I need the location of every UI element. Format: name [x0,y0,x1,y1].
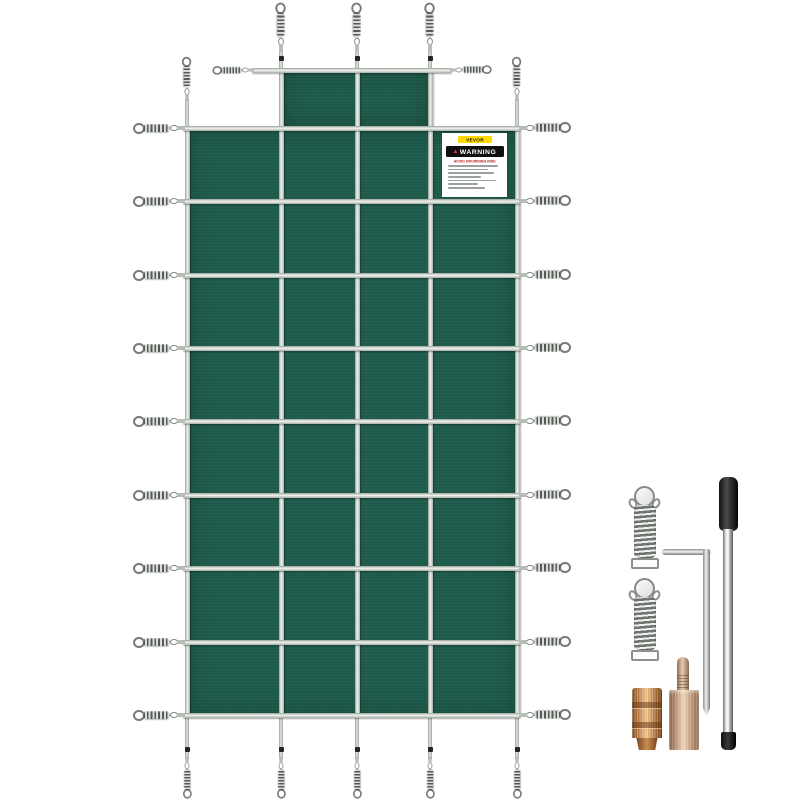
warning-label: VEVOR ▲ WARNING AVOID DROWNING RISK [442,133,507,197]
tension-spring [423,3,436,52]
spring-coil [514,65,521,88]
tension-spring [519,488,571,502]
tension-spring [212,64,254,75]
tension-spring [181,57,193,101]
spring-hook [527,492,535,498]
spring-coil [220,67,242,73]
tension-spring [350,3,363,52]
spring-coil [534,271,561,279]
tension-spring [133,708,185,722]
spring-coil [426,12,434,38]
fine-print-line [448,180,496,182]
spring-tail [519,493,528,496]
spring-tail [280,757,283,764]
spring-coil [353,12,361,38]
tension-spring [519,341,571,355]
tension-spring [519,194,571,208]
spring-tail [177,419,186,422]
spring-tail [280,44,283,52]
spring-hook [527,345,535,351]
spring-coil [514,769,520,791]
spring-tail [450,69,457,72]
tension-spring [133,341,185,355]
anchor-base [635,738,659,750]
spring-tail [177,713,186,716]
spring-hook [527,565,535,571]
tension-spring [133,635,185,649]
spring-coil [278,769,284,791]
cover-spring [628,576,664,662]
spring-clip [631,558,659,569]
spring-coil [534,124,561,132]
brass-anchor [632,688,662,750]
tension-spring [274,3,287,52]
tension-spring [133,121,185,135]
tension-spring [519,708,571,722]
strap-buckle [279,56,284,61]
tension-spring [450,64,492,75]
tension-spring [519,635,571,649]
spring-hook [527,418,535,424]
horizontal-strap [183,126,521,131]
step-vertical-strap [428,68,433,130]
spring-coil [534,197,561,205]
spring-coil [143,271,170,279]
tension-spring [133,414,185,428]
anchor-groove [632,722,662,728]
installation-rod [716,477,740,753]
spring-tail [516,757,519,764]
product-image: VEVOR ▲ WARNING AVOID DROWNING RISK [0,0,800,800]
spring-coil [143,564,170,572]
tension-spring [181,757,192,799]
fine-print-line [448,169,488,171]
spring-tail [356,757,359,764]
tension-spring [511,57,523,101]
spring-coil [462,67,484,73]
spring-tail [519,346,528,349]
pin-threads [677,673,689,691]
strap-stub [355,715,359,759]
horizontal-strap [183,493,521,498]
warning-triangle-icon: ▲ [453,148,459,154]
tension-spring [133,488,185,502]
strap-stub [185,715,189,759]
spring-coil [354,769,360,791]
horizontal-strap [183,346,521,351]
rod-tip [721,732,736,750]
spring-tail [177,493,186,496]
spring-tail [519,199,528,202]
spring-tail [177,346,186,349]
spring-tail [177,126,186,129]
warning-banner: ▲ WARNING [446,146,504,157]
strap-stub [428,715,432,759]
spring-hook [514,763,519,769]
brand-text: VEVOR [466,137,484,142]
spring-tail [356,44,359,52]
tension-spring [351,757,362,799]
horizontal-strap [183,273,521,278]
tension-spring [519,121,571,135]
strap-buckle [355,56,360,61]
spring-hook [184,763,189,769]
horizontal-strap [183,566,521,571]
strap-buckle [515,747,520,752]
spring-hook [427,763,432,769]
brand-badge: VEVOR [458,136,492,143]
spring-hook [527,125,535,131]
tension-spring [519,414,571,428]
spring-tail [519,273,528,276]
warning-title: WARNING [460,148,496,155]
spring-coil [143,638,170,646]
rod-handle [719,477,738,531]
fine-print-line [448,176,481,178]
warning-banner-content: ▲ WARNING [453,148,497,155]
hex-key-long-arm [703,549,710,716]
horizontal-strap [183,713,521,718]
spring-coil [277,12,285,38]
step-top-strap [252,68,452,73]
spring-tail [177,273,186,276]
spring-tail [177,640,186,643]
strap-buckle [185,747,190,752]
spring-coil [184,65,191,88]
spring-coil [143,491,170,499]
spring-tail [177,199,186,202]
spring-tail [429,757,432,764]
warning-subtitle: AVOID DROWNING RISK [428,158,522,164]
spring-tail [516,94,519,101]
spring-hook [527,272,535,278]
spring-coil [634,505,656,558]
horizontal-strap [183,640,521,645]
spring-coil [143,417,170,425]
spring-coil [534,711,561,719]
fine-print-line [448,187,485,189]
spring-coil [534,417,561,425]
step-vertical-strap [355,68,360,130]
spring-tail [519,126,528,129]
fine-print-line [448,172,494,174]
spring-coil [534,638,561,646]
tension-spring [133,561,185,575]
spring-tail [429,44,432,52]
strap-buckle [428,747,433,752]
spring-coil [184,769,190,791]
step-vertical-strap [279,68,284,130]
tension-spring [275,757,286,799]
spring-hook [527,712,535,718]
spring-coil [634,597,656,650]
pin-anchor [666,657,700,751]
spring-coil [143,197,170,205]
spring-tail [519,419,528,422]
rod-shaft [723,529,733,733]
fine-print-lines [448,165,501,189]
spring-coil [534,564,561,572]
tension-spring [519,268,571,282]
tension-spring [133,194,185,208]
spring-tail [519,640,528,643]
tension-spring [511,757,522,799]
spring-hook [278,763,283,769]
spring-hook [527,198,535,204]
spring-coil [427,769,433,791]
spring-hook [527,639,535,645]
horizontal-strap [183,419,521,424]
spring-hook [354,763,359,769]
fine-print-line [448,165,498,167]
spring-clip [631,650,659,661]
spring-tail [186,94,189,101]
strap-buckle [428,56,433,61]
spring-coil [143,124,170,132]
anchor-body [669,690,699,750]
spring-tail [186,757,189,764]
fine-print-line [448,183,478,185]
spring-tail [519,713,528,716]
spring-coil [534,491,561,499]
spring-coil [143,344,170,352]
strap-buckle [279,747,284,752]
spring-coil [143,711,170,719]
horizontal-strap [183,199,521,204]
spring-tail [177,566,186,569]
spring-tail [519,566,528,569]
spring-coil [534,344,561,352]
spring-tail [247,69,254,72]
anchor-groove [632,702,662,708]
tension-spring [519,561,571,575]
strap-buckle [355,747,360,752]
tension-spring [424,757,435,799]
anchor-body [632,688,662,738]
spring-hook [456,67,462,72]
tension-spring [133,268,185,282]
strap-stub [279,715,283,759]
cover-spring [628,484,664,570]
